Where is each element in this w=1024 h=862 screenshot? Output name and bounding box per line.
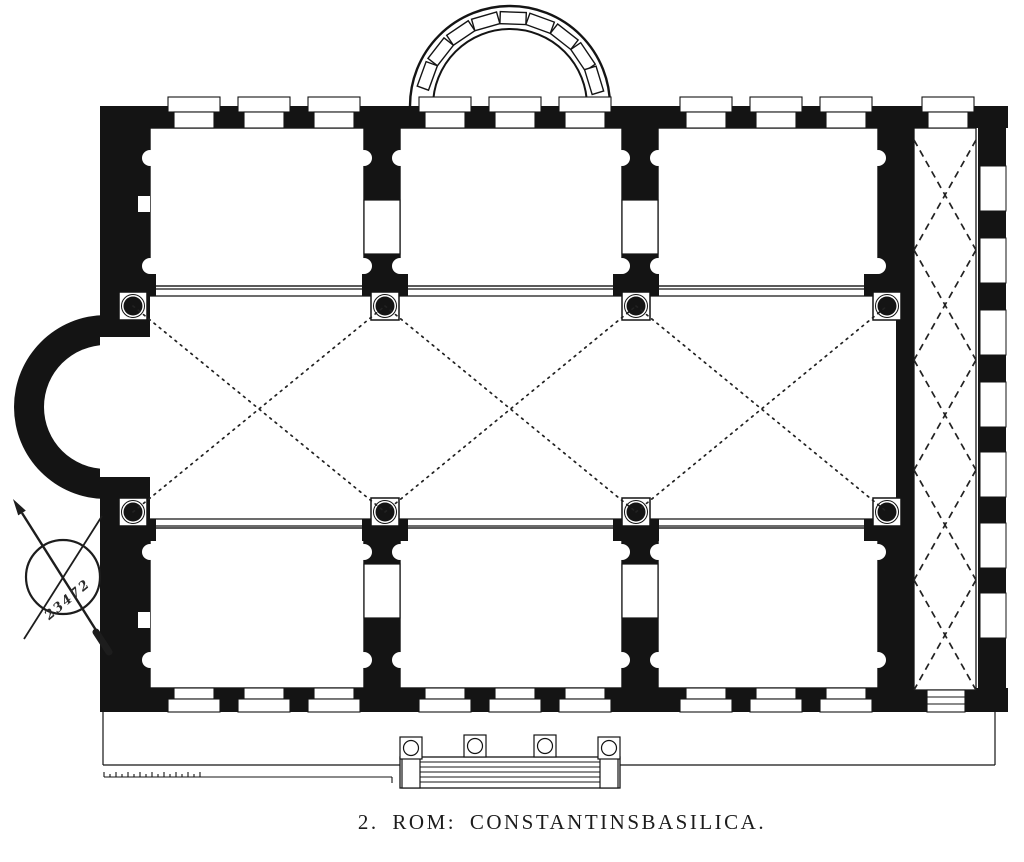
narthex-south-door — [927, 690, 965, 712]
porch-steps — [400, 735, 620, 788]
north-chamber-1 — [150, 128, 364, 286]
north-arrowhead — [13, 499, 26, 515]
compass-rose-icon — [13, 499, 109, 652]
narthex — [914, 128, 976, 690]
nave-pier-blocks — [110, 274, 910, 541]
vault-diagonals — [133, 306, 887, 512]
south-chamber-2 — [400, 528, 622, 688]
figure-caption: 2. ROM: CONSTANTINSBASILICA. — [100, 810, 1024, 835]
apse-coffers — [417, 12, 603, 95]
scale-bar — [104, 772, 392, 783]
scanned-plate: 23472 2. ROM: CONSTANTINSBASILICA. — [0, 0, 1024, 862]
south-chamber-1 — [150, 528, 364, 688]
narthex-north-door — [922, 97, 974, 128]
porch-column-bases — [400, 735, 620, 759]
nave-columns — [119, 292, 901, 526]
south-chamber-3 — [658, 528, 878, 688]
north-chamber-3 — [658, 128, 878, 286]
north-chamber-2 — [400, 128, 622, 286]
north-apse — [410, 6, 610, 106]
floor-plan-drawing — [0, 0, 1024, 862]
nave-boundary — [150, 289, 914, 526]
